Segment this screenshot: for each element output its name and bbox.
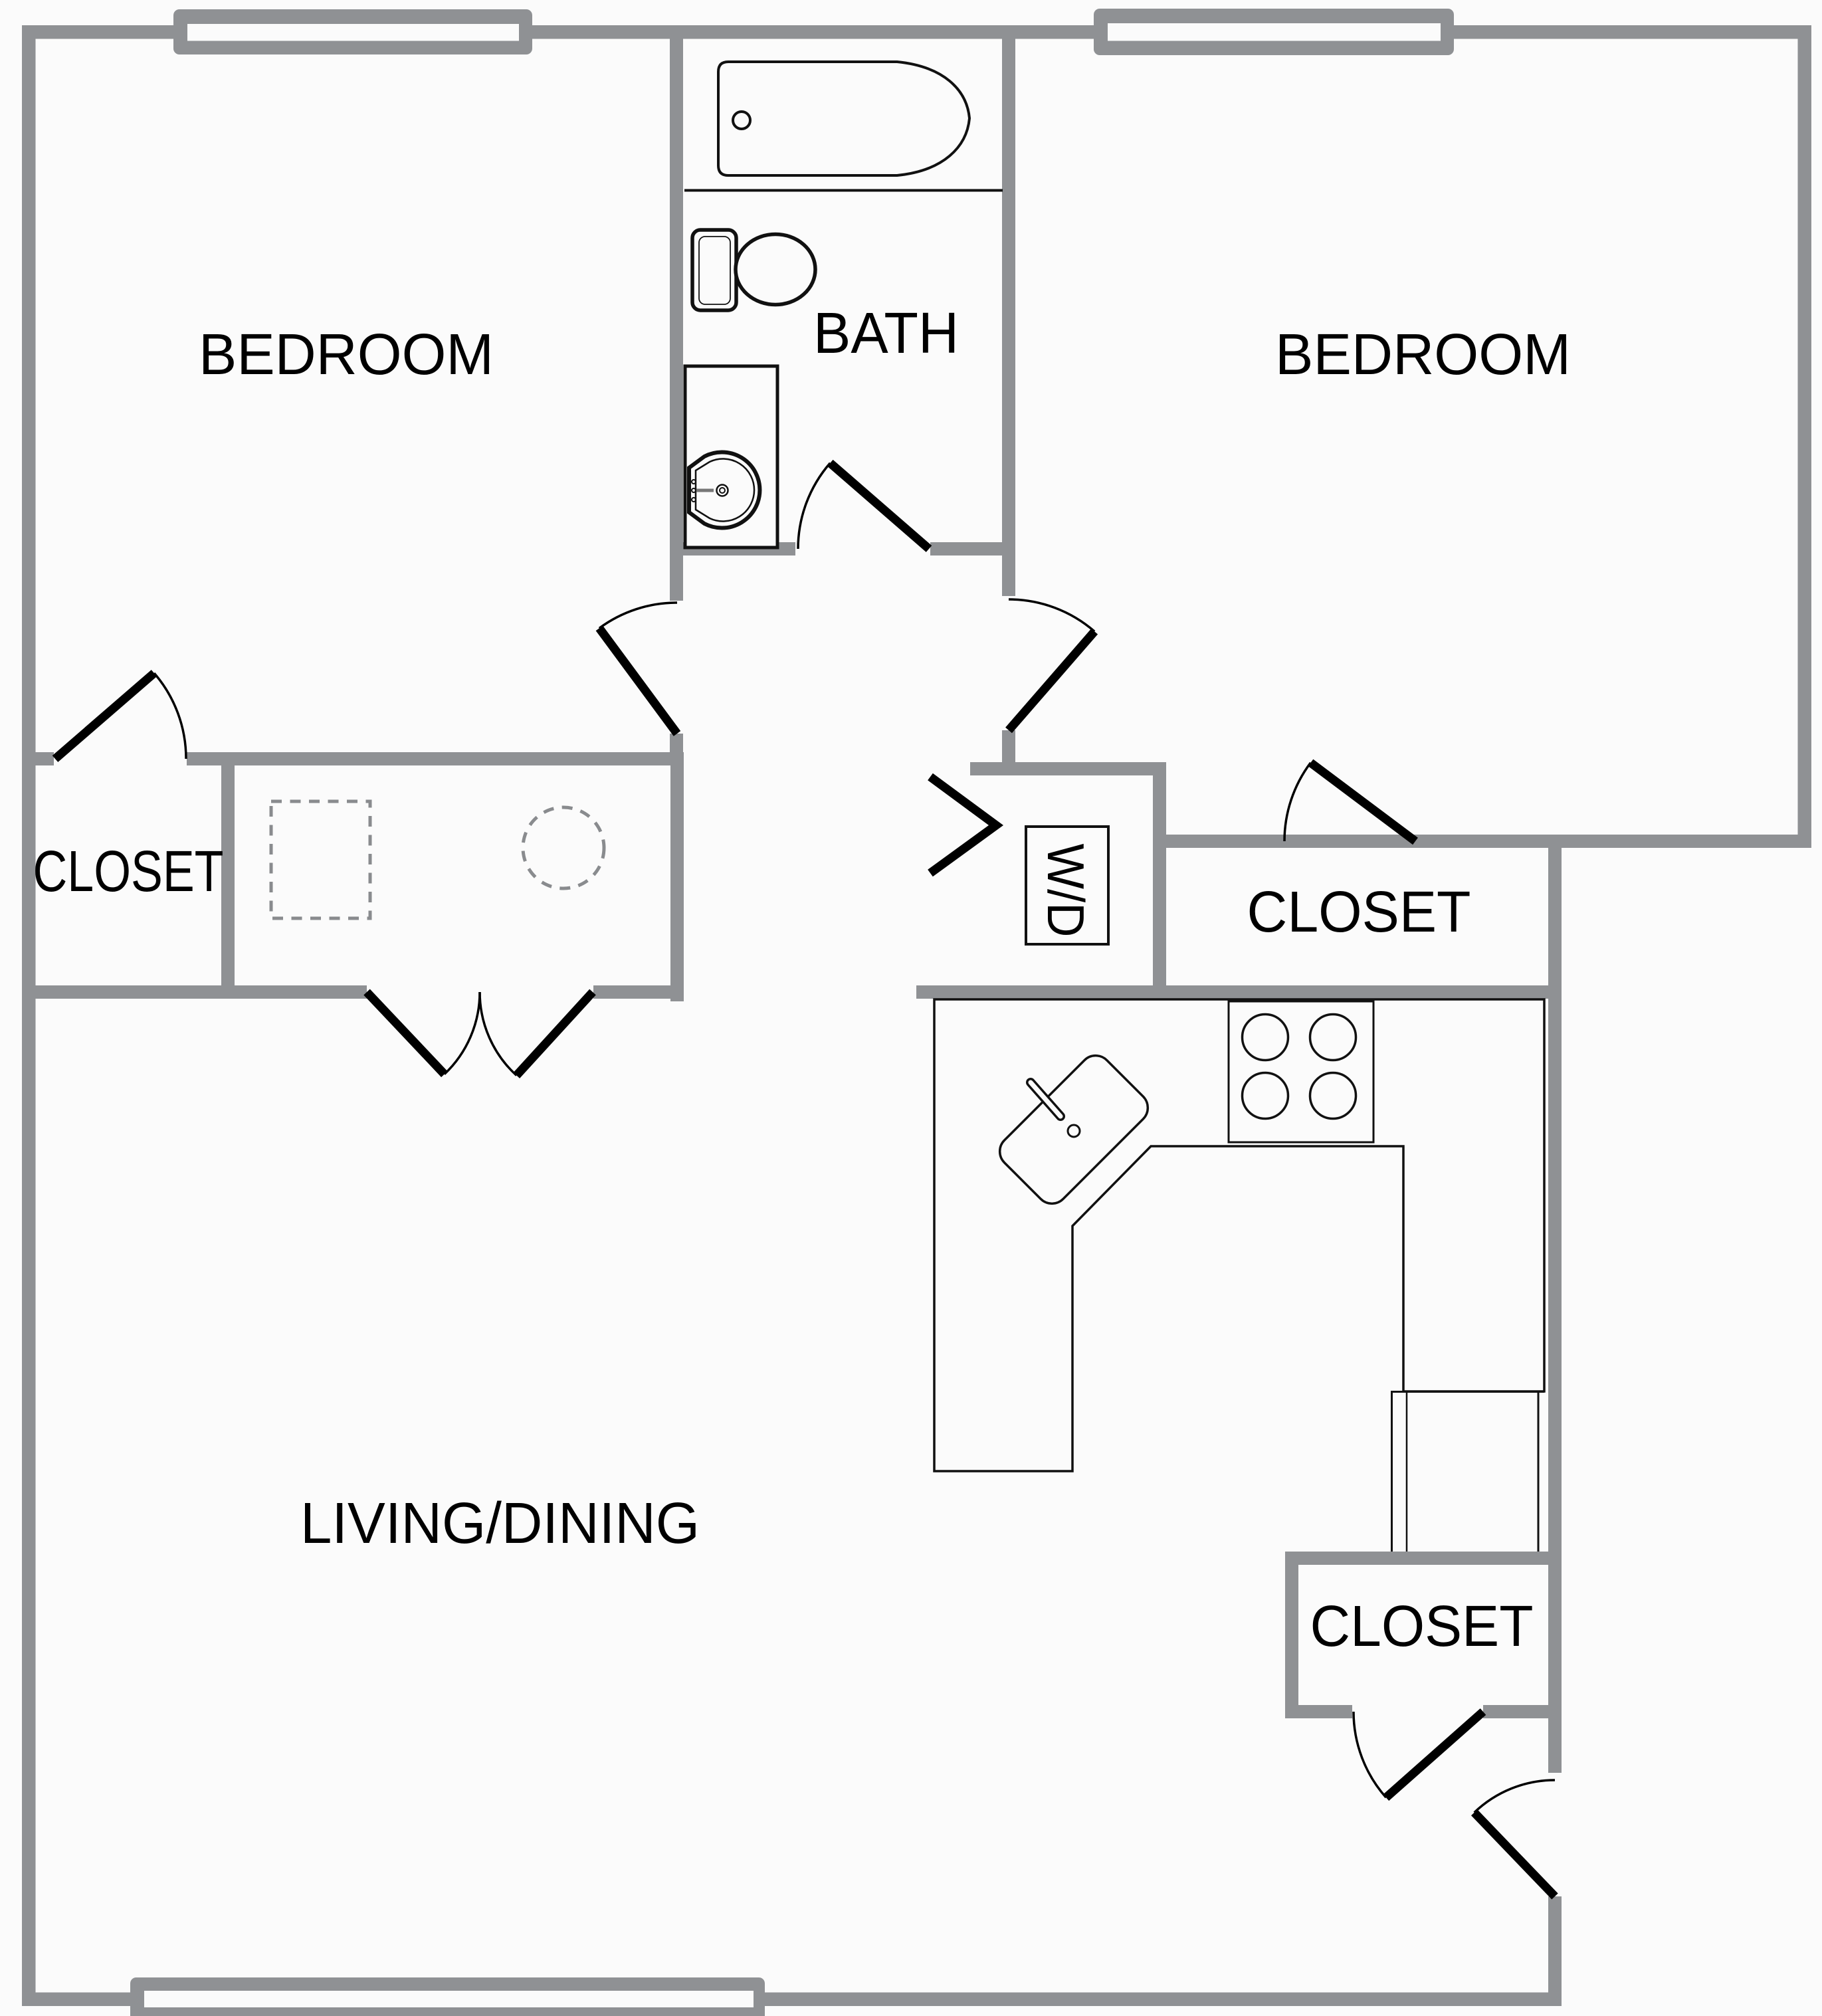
svg-text:BEDROOM: BEDROOM (199, 322, 494, 387)
svg-text:LIVING/DINING: LIVING/DINING (300, 1491, 700, 1556)
svg-text:CLOSET: CLOSET (1247, 880, 1471, 944)
svg-text:BEDROOM: BEDROOM (1275, 322, 1571, 387)
svg-text:CLOSET: CLOSET (33, 839, 224, 904)
svg-text:BATH: BATH (813, 301, 959, 365)
svg-text:W/D: W/D (1037, 844, 1095, 938)
svg-text:CLOSET: CLOSET (1310, 1594, 1534, 1659)
